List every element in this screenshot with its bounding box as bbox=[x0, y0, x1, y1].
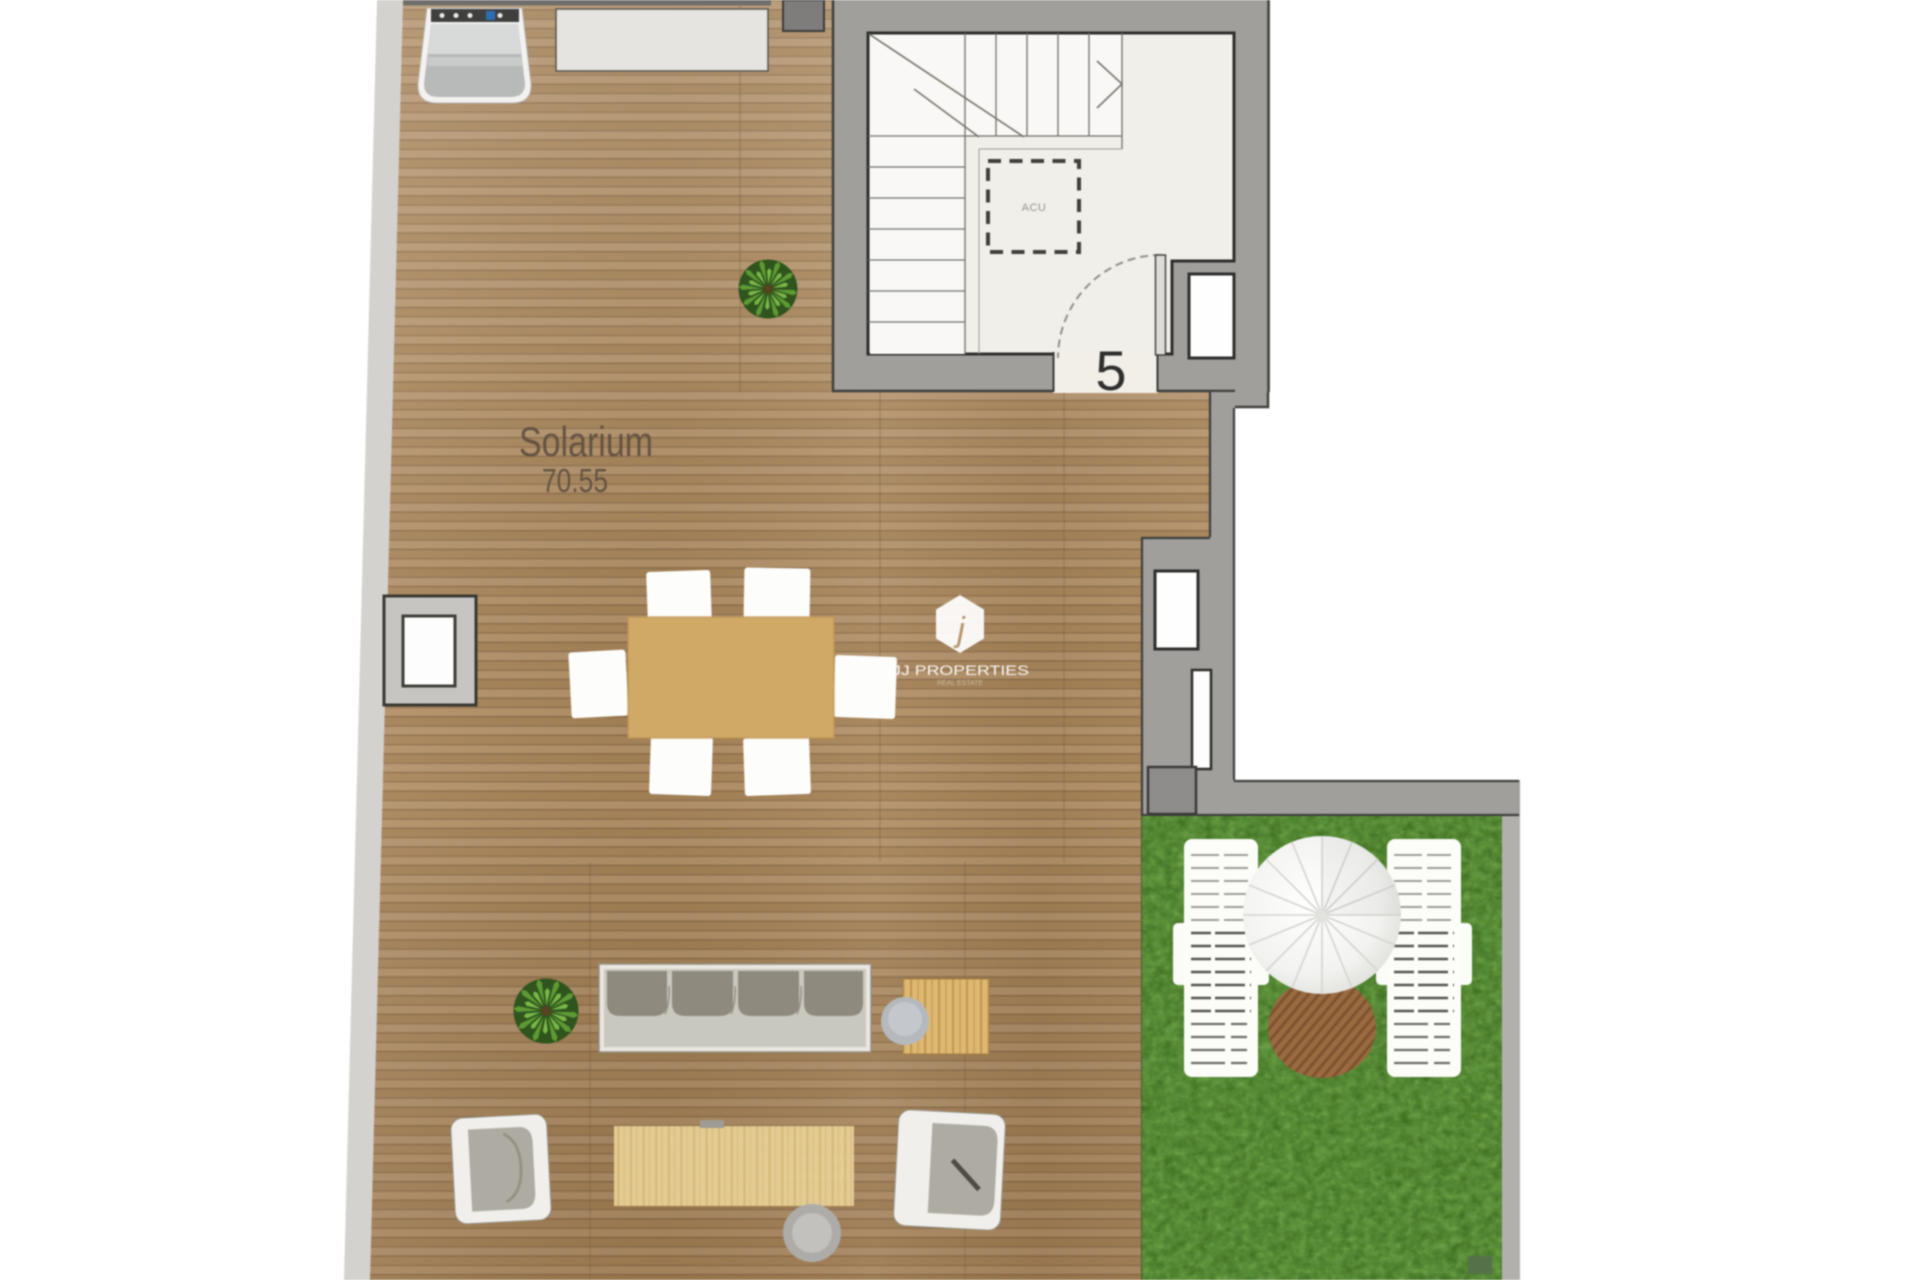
svg-text:5: 5 bbox=[1095, 339, 1126, 402]
svg-text:JJ PROPERTIES: JJ PROPERTIES bbox=[892, 663, 1029, 678]
svg-text:70.55: 70.55 bbox=[542, 462, 608, 499]
svg-text:Solarium: Solarium bbox=[519, 418, 653, 465]
svg-text:ACU: ACU bbox=[1022, 202, 1047, 214]
svg-text:REAL ESTATE: REAL ESTATE bbox=[937, 680, 983, 687]
